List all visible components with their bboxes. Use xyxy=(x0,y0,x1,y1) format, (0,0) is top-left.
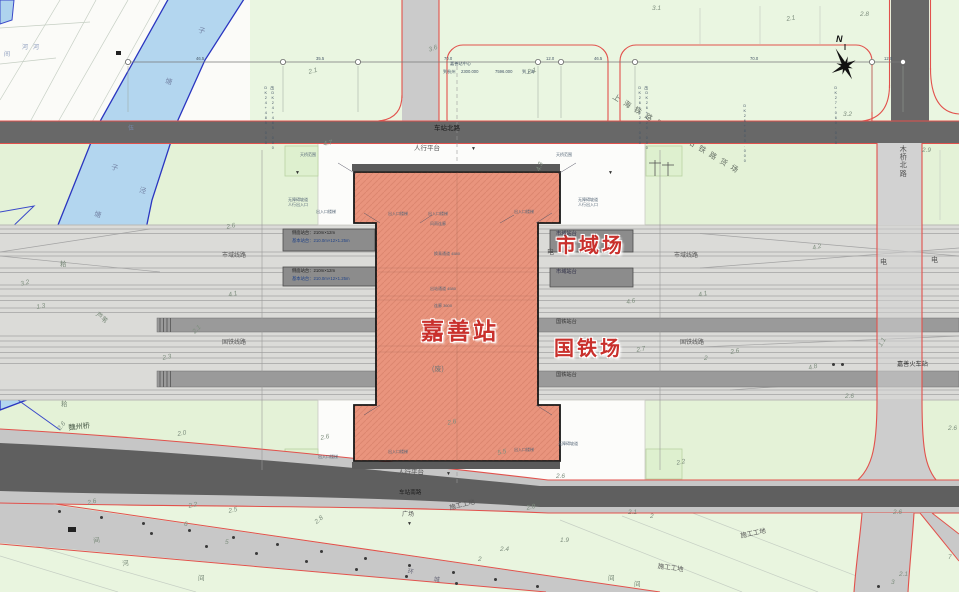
platform-spec: 基本站台：210.0m×12×1.25m xyxy=(292,277,350,281)
chainage-mark: DK24+485.000 xyxy=(263,86,267,146)
elevation-point: 3.2 xyxy=(20,280,30,289)
tree-dot xyxy=(364,557,367,560)
elevation-point: 4.6 xyxy=(626,298,636,306)
tree-dot xyxy=(452,571,455,574)
elevation-point: 4.7 xyxy=(323,140,333,148)
elevation-point: 2 xyxy=(704,356,708,363)
area-label: 环 xyxy=(407,569,414,576)
river-char: 子 xyxy=(110,164,119,173)
area-label: 间 xyxy=(634,582,641,589)
tree-dot xyxy=(841,363,844,366)
area-label: ▼ xyxy=(471,147,476,152)
tree-dot xyxy=(276,543,279,546)
road-label: 魏州桥 xyxy=(68,422,90,431)
tree-dot xyxy=(405,575,408,578)
elevation-point: 2.1 xyxy=(192,325,203,336)
area-label: (废) xyxy=(432,366,444,373)
micro-annotation: 天桥范围 xyxy=(300,153,316,157)
tree-dot xyxy=(188,529,191,532)
elevation-point: 2.1 xyxy=(786,15,796,23)
area-label: 间 xyxy=(93,538,101,546)
tree-dot xyxy=(832,363,835,366)
micro-annotation: 出入口楼梯 xyxy=(318,455,338,459)
micro-annotation: 天桥范围 xyxy=(556,153,572,157)
micro-annotation: 换乘通道 4580 xyxy=(434,252,460,256)
tree-dot xyxy=(142,522,145,525)
micro-annotation: 人行出入口 xyxy=(578,203,598,207)
elevation-point: 2.6 xyxy=(556,474,565,481)
elevation-point: 5 xyxy=(225,540,229,547)
dimension-value: 70.0 xyxy=(750,57,758,61)
tree-dot xyxy=(320,550,323,553)
platform-spec: 侧面站台：210m×12m xyxy=(292,269,335,273)
chainage-mark: DK27+060.000 xyxy=(833,86,837,146)
micro-annotation: 出入口楼梯 xyxy=(514,210,534,214)
area-label: 广场 xyxy=(402,512,414,518)
elevation-point: 2.4 xyxy=(500,547,509,554)
tree-dot xyxy=(305,560,308,563)
elevation-point: 3.6 xyxy=(428,45,439,54)
elevation-point: 4.8 xyxy=(808,364,818,373)
elevation-point: 2.6 xyxy=(320,434,330,442)
area-label: ▼ xyxy=(295,171,300,176)
elevation-point: 2.5 xyxy=(228,507,238,515)
chainage-mark: DK26+120.000 xyxy=(637,86,641,146)
area-label: 市域线路 xyxy=(674,253,698,259)
elevation-point: 3.1 xyxy=(652,6,661,13)
site-plan-canvas: 上海铁路局嘉善站铁路货场 xyxy=(0,0,959,592)
red-label: 嘉善站 xyxy=(421,320,499,343)
dimension-value: 46.5 xyxy=(196,57,204,61)
platform-spec: 侧面站台：210m×12m xyxy=(292,231,335,235)
area-label: 芦苇 xyxy=(94,312,108,325)
elevation-point: 2.2 xyxy=(188,502,198,510)
red-label: 国铁场 xyxy=(554,339,623,359)
dimension-value: 12.0 xyxy=(884,57,892,61)
elevation-point: 2.6 xyxy=(893,510,902,517)
area-label: 施工工地 xyxy=(740,529,767,541)
elevation-point: 2.3 xyxy=(162,354,172,362)
area-label: 国铁站台 xyxy=(556,320,577,325)
micro-annotation: 连廊 3600 xyxy=(434,304,452,308)
elevation-point: 4.1 xyxy=(698,291,708,299)
area-label: 市域站台 xyxy=(556,232,577,237)
area-label: 嘉善火车站 xyxy=(897,362,928,368)
river-char: 子 xyxy=(197,27,206,36)
dimension-value: 46.5 xyxy=(594,57,602,61)
dimension-value: 35.5 xyxy=(316,57,324,61)
area-label: 间 xyxy=(198,576,205,583)
elevation-point: 4.2 xyxy=(812,244,822,253)
road-label: 车站北路 xyxy=(434,126,460,133)
elevation-point: 7 xyxy=(948,555,952,562)
tree-dot xyxy=(255,552,258,555)
micro-annotation: 出站通道 4580 xyxy=(430,287,456,291)
area-label: 国铁线路 xyxy=(680,340,704,346)
elevation-point: 4.1 xyxy=(228,291,238,299)
micro-annotation: 风雨连廊 xyxy=(430,222,446,226)
elevation-point: 3.2 xyxy=(843,112,852,119)
area-label: ▼ xyxy=(446,472,451,477)
elevation-point: 2.6 xyxy=(730,348,740,356)
area-label: 耠 xyxy=(60,262,67,269)
chainage-mark: DK26+800.000 xyxy=(742,104,746,164)
tree-dot xyxy=(150,532,153,535)
micro-annotation: 人行出入口 xyxy=(288,203,308,207)
elevation-point: 2.8 xyxy=(860,12,869,19)
micro-annotation: 出入口楼梯 xyxy=(388,450,408,454)
elevation-point: 2.6 xyxy=(226,223,236,231)
elevation-point: 1.1 xyxy=(878,337,888,348)
elevation-point: 2.7 xyxy=(636,346,646,354)
micro-annotation: 出入口楼梯 xyxy=(514,448,534,452)
elevation-point: 2.6 xyxy=(447,419,457,427)
area-label: 国铁站台 xyxy=(556,373,577,378)
chainage-mark: 改DK24+485.000 xyxy=(270,86,274,151)
river-char: 塘 xyxy=(164,78,173,87)
tree-dot xyxy=(877,585,880,588)
elevation-point: 2.1 xyxy=(527,68,537,77)
elevation-point: 2.9 xyxy=(922,148,931,155)
kilometer-label: 7596.000 xyxy=(495,70,512,74)
platform-spec: 基本站台：210.0m×12×1.25m xyxy=(292,239,350,243)
chainage-mark: 改DK26+120.000 xyxy=(644,86,648,151)
area-label: ▼ xyxy=(407,522,412,527)
road-label: 车站南路 xyxy=(399,491,421,497)
river-char: 伍 xyxy=(128,126,134,132)
tree-dot xyxy=(232,536,235,539)
area-label: 电 xyxy=(931,257,938,264)
area-label: 电 xyxy=(547,249,554,256)
elevation-point: 6 xyxy=(184,522,188,529)
tree-dot xyxy=(58,510,61,513)
elevation-point: 2.1 xyxy=(899,572,908,579)
elevation-point: 2.0 xyxy=(526,504,536,512)
elevation-point: 5.5 xyxy=(497,449,507,457)
tree-dot xyxy=(494,578,497,581)
area-label: 河 xyxy=(122,561,130,569)
river-char: 河 xyxy=(22,45,28,51)
micro-annotation: 无障碍坡道 xyxy=(558,442,578,446)
elevation-point: 1.9 xyxy=(560,538,569,545)
tree-dot xyxy=(408,564,411,567)
area-label: 市域站台 xyxy=(556,270,577,275)
tree-dot xyxy=(355,568,358,571)
river-char: 塘 xyxy=(93,211,102,220)
area-label: 耠 xyxy=(61,402,68,409)
river-char: 泾 xyxy=(138,187,147,196)
elevation-point: 2 xyxy=(650,514,654,521)
elevation-point: 3 xyxy=(891,580,895,587)
elevation-point: 2.1 xyxy=(628,510,637,517)
kilometer-label: 嘉善站中心 xyxy=(450,62,471,66)
river-char: 间 xyxy=(4,52,10,58)
elevation-point: 2.8 xyxy=(314,515,325,526)
area-label: 电 xyxy=(880,259,887,266)
kilometer-label: 2300.000 xyxy=(461,70,478,74)
kilometer-label: 到杭州 xyxy=(443,70,456,74)
dimension-value: 12.0 xyxy=(546,57,554,61)
micro-annotation: 出入口楼梯 xyxy=(316,210,336,214)
area-label: 国铁线路 xyxy=(222,340,246,346)
tree-dot xyxy=(455,582,458,585)
area-label: 城 xyxy=(433,577,440,584)
elevation-point: 2.6 xyxy=(845,394,854,401)
labels-layer: 市域场嘉善站国铁场车站北路车站南路魏州桥木桥北路人行平台人行平台市域线路市域线路… xyxy=(0,0,959,592)
road-label: 木桥北路 xyxy=(900,145,907,178)
elevation-point: 2.0 xyxy=(177,430,187,438)
river-char: 河 xyxy=(33,45,39,51)
area-label: 间 xyxy=(608,576,615,583)
elevation-point: 4.3 xyxy=(536,161,545,172)
tree-dot xyxy=(536,585,539,588)
elevation-point: 2.6 xyxy=(87,499,97,508)
area-label: 施工工地 xyxy=(449,500,476,513)
elevation-point: 2.6 xyxy=(948,426,957,433)
red-label: 市域场 xyxy=(556,236,625,256)
elevation-point: 2.1 xyxy=(308,68,318,77)
area-label: 市域线路 xyxy=(222,253,246,259)
area-label: ▼ xyxy=(608,171,613,176)
elevation-point: 2.2 xyxy=(676,459,686,467)
tree-dot xyxy=(100,516,103,519)
micro-annotation: 出入口楼梯 xyxy=(428,212,448,216)
area-label: 人行平台 xyxy=(398,470,424,477)
elevation-point: 2 xyxy=(478,557,482,564)
area-label: 人行平台 xyxy=(414,146,440,153)
area-label: 施工工地 xyxy=(657,564,684,574)
elevation-point: 1.3 xyxy=(36,303,46,311)
tree-dot xyxy=(205,545,208,548)
elevation-point: 2.6 xyxy=(57,421,68,432)
micro-annotation: 出入口楼梯 xyxy=(388,212,408,216)
